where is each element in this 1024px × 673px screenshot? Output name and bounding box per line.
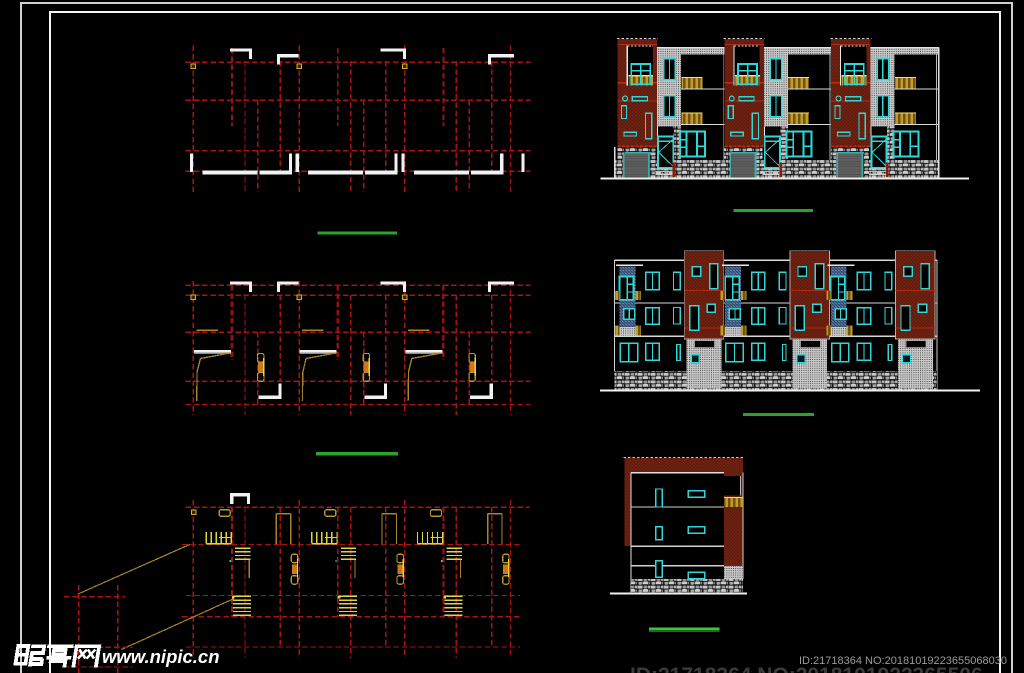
svg-text:ID:21718364 NO:201810192236550: ID:21718364 NO:2018101922365506 xyxy=(630,664,983,673)
svg-text:www.nipic.cn: www.nipic.cn xyxy=(102,646,220,667)
